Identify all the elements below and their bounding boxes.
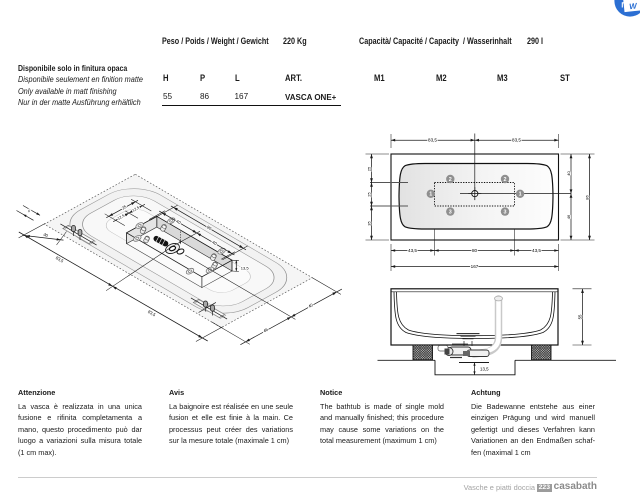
- svg-text:13,5: 13,5: [480, 367, 489, 372]
- svg-text:83,5: 83,5: [512, 138, 521, 143]
- svg-text:40: 40: [307, 302, 314, 309]
- svg-text:83,5: 83,5: [55, 255, 65, 264]
- svg-text:86: 86: [584, 195, 589, 200]
- svg-text:43,5: 43,5: [532, 248, 541, 253]
- svg-text:46: 46: [262, 327, 269, 334]
- svg-text:1: 1: [519, 192, 522, 198]
- svg-text:35: 35: [366, 221, 371, 226]
- svg-text:167: 167: [471, 264, 479, 269]
- svg-text:40: 40: [566, 171, 571, 176]
- svg-text:25: 25: [366, 192, 371, 197]
- svg-text:3: 3: [504, 210, 507, 216]
- svg-text:55: 55: [577, 314, 582, 319]
- svg-text:43,5: 43,5: [408, 248, 417, 253]
- svg-text:83,5: 83,5: [147, 309, 157, 318]
- svg-text:80: 80: [472, 248, 478, 253]
- svg-text:1: 1: [429, 192, 432, 198]
- svg-text:13,5: 13,5: [241, 266, 250, 271]
- svg-text:46: 46: [566, 214, 571, 219]
- svg-text:25: 25: [366, 166, 371, 171]
- svg-text:2: 2: [449, 177, 452, 183]
- svg-text:83,5: 83,5: [428, 138, 437, 143]
- svg-text:3: 3: [449, 210, 452, 216]
- svg-text:2: 2: [504, 177, 507, 183]
- svg-text:5: 5: [27, 209, 31, 213]
